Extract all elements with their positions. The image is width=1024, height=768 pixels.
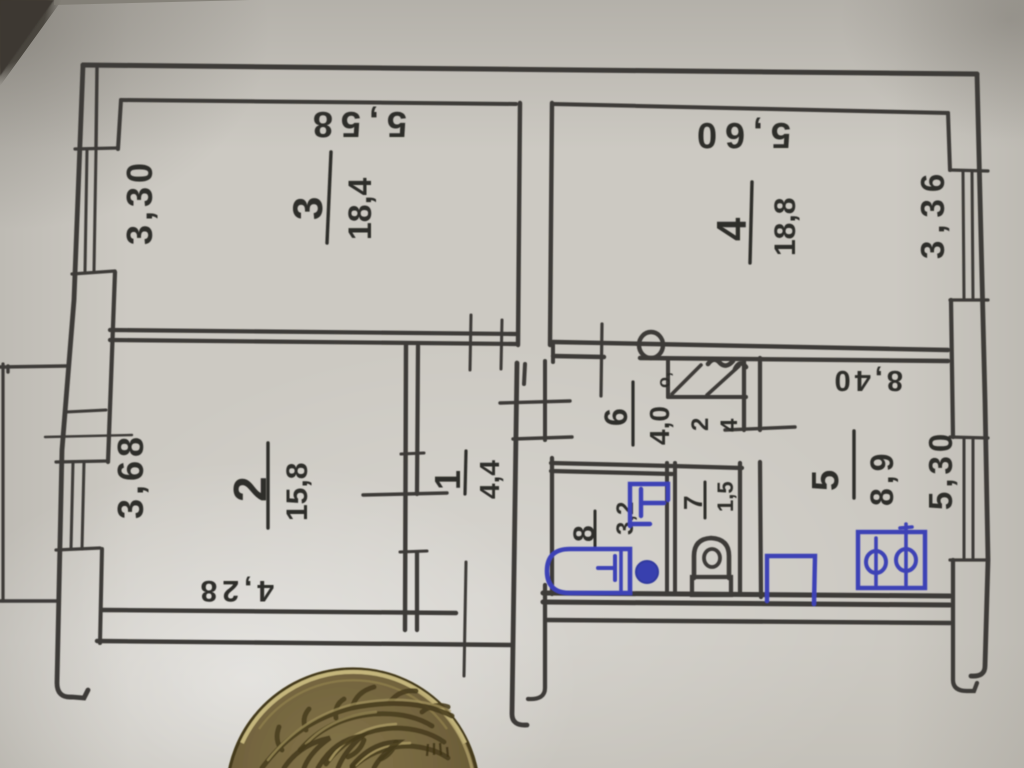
- svg-text:4,28: 4,28: [196, 574, 274, 607]
- svg-text:2: 2: [687, 418, 714, 431]
- svg-text:15,8: 15,8: [281, 463, 314, 521]
- svg-text:18,4: 18,4: [342, 178, 378, 240]
- svg-text:4,4: 4,4: [474, 460, 505, 499]
- svg-text:1,5: 1,5: [713, 481, 738, 512]
- svg-text:18,8: 18,8: [769, 198, 802, 256]
- svg-text:3,68: 3,68: [110, 433, 151, 519]
- svg-text:6: 6: [598, 408, 634, 426]
- svg-text:3,30: 3,30: [119, 159, 160, 245]
- svg-text:4: 4: [716, 418, 743, 432]
- svg-text:3,36: 3,36: [914, 167, 951, 259]
- svg-text:5,60: 5,60: [689, 115, 791, 156]
- svg-text:8,40: 8,40: [831, 364, 903, 396]
- svg-text:о,: о,: [654, 372, 674, 388]
- svg-text:3: 3: [284, 197, 331, 220]
- svg-text:1: 1: [427, 470, 468, 490]
- svg-text:4,0: 4,0: [644, 406, 675, 445]
- svg-text:3,2: 3,2: [612, 502, 639, 535]
- svg-text:5: 5: [805, 470, 847, 491]
- svg-text:5,58: 5,58: [305, 104, 407, 145]
- svg-text:4: 4: [708, 217, 755, 241]
- svg-text:8,9: 8,9: [864, 450, 900, 506]
- svg-text:5,30: 5,30: [922, 430, 959, 510]
